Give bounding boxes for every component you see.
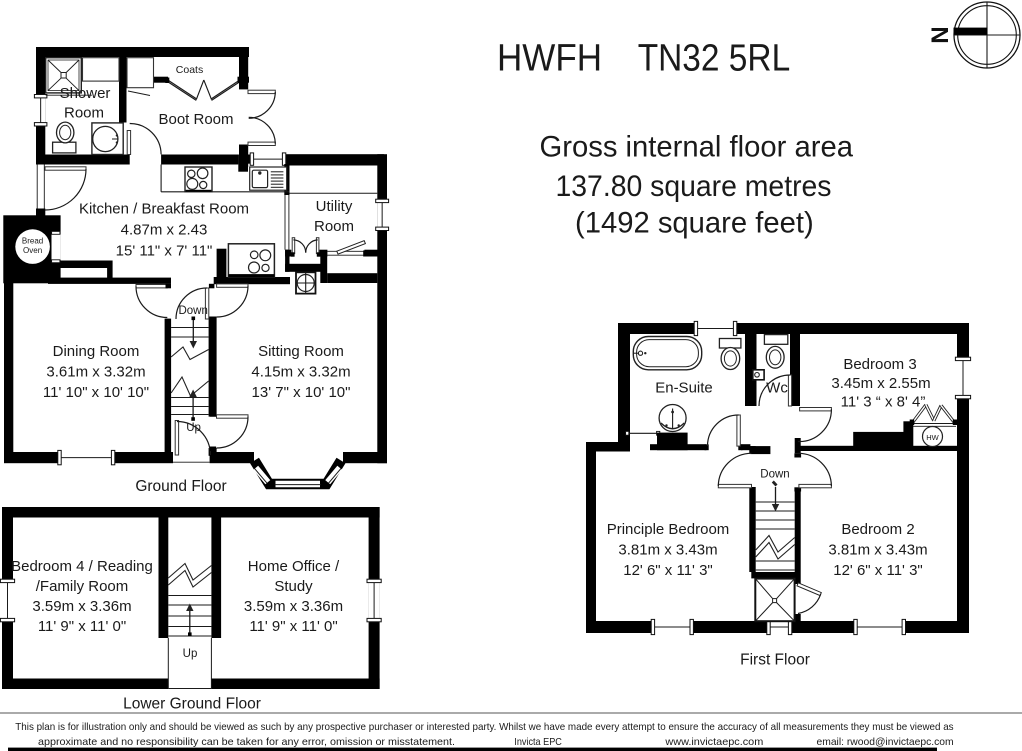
svg-text:(1492 square feet): (1492 square feet) — [575, 207, 814, 240]
svg-text:Bread: Bread — [22, 237, 43, 246]
svg-text:En-Suite: En-Suite — [655, 380, 713, 397]
svg-text:Boot Room: Boot Room — [158, 111, 233, 128]
svg-text:Lower Ground Floor: Lower Ground Floor — [123, 696, 261, 713]
svg-text:3.59m x 3.36m: 3.59m x 3.36m — [32, 598, 131, 615]
svg-text:Bedroom 3: Bedroom 3 — [843, 356, 916, 373]
svg-text:N: N — [926, 26, 953, 43]
svg-text:Room: Room — [64, 105, 104, 122]
svg-text:First Floor: First Floor — [740, 652, 810, 669]
svg-text:Bedroom 2: Bedroom 2 — [841, 521, 914, 538]
svg-text:13' 7" x 10' 10": 13' 7" x 10' 10" — [252, 384, 351, 401]
svg-text:Kitchen / Breakfast Room: Kitchen / Breakfast Room — [79, 201, 249, 218]
svg-text:approximate and no responsibil: approximate and no responsibility can be… — [38, 737, 455, 748]
svg-text:11' 9" x 11' 0": 11' 9" x 11' 0" — [249, 618, 337, 635]
svg-text:Up: Up — [186, 422, 201, 434]
svg-text:3.61m x 3.32m: 3.61m x 3.32m — [46, 364, 145, 381]
svg-text:Coats: Coats — [176, 64, 203, 76]
svg-text:Sitting Room: Sitting Room — [258, 343, 344, 360]
svg-text:Up: Up — [183, 648, 198, 660]
svg-text:Down: Down — [760, 469, 789, 481]
svg-text:Dining Room: Dining Room — [53, 343, 140, 360]
svg-text:3.81m x 3.43m: 3.81m x 3.43m — [618, 542, 717, 559]
svg-text:Invicta EPC: Invicta EPC — [514, 737, 562, 748]
svg-text:Bedroom 4 / Reading: Bedroom 4 / Reading — [11, 558, 153, 575]
svg-text:Oven: Oven — [23, 246, 42, 255]
svg-text:11' 10" x 10' 10": 11' 10" x 10' 10" — [43, 384, 149, 401]
svg-text:Principle Bedroom: Principle Bedroom — [607, 521, 730, 538]
svg-text:Ground Floor: Ground Floor — [135, 478, 226, 495]
svg-text:Shower: Shower — [60, 85, 111, 102]
svg-text:HW: HW — [926, 433, 939, 442]
svg-text:Study: Study — [274, 578, 313, 595]
svg-text:12' 6" x 11' 3": 12' 6" x 11' 3" — [833, 562, 923, 579]
svg-text:Wc: Wc — [766, 380, 788, 397]
svg-text:Home Office /: Home Office / — [248, 558, 340, 575]
svg-text:email: rwood@invictaepc.com: email: rwood@invictaepc.com — [817, 737, 954, 748]
svg-text:HWFH: HWFH — [497, 38, 602, 80]
svg-text:TN32 5RL: TN32 5RL — [638, 38, 791, 80]
svg-text:This plan is for illustration: This plan is for illustration only and s… — [15, 722, 953, 733]
svg-text:12' 6" x 11' 3": 12' 6" x 11' 3" — [623, 562, 713, 579]
svg-text:4.15m x 3.32m: 4.15m x 3.32m — [251, 364, 350, 381]
svg-text:137.80 square metres: 137.80 square metres — [556, 170, 832, 203]
svg-text:Gross internal floor area: Gross internal floor area — [540, 131, 854, 164]
svg-text:11' 3 “ x 8' 4”: 11' 3 “ x 8' 4” — [841, 394, 926, 411]
svg-text:15' 11" x 7' 11": 15' 11" x 7' 11" — [116, 243, 213, 260]
svg-text:Down: Down — [178, 305, 207, 317]
svg-text:3.59m x 3.36m: 3.59m x 3.36m — [244, 598, 343, 615]
svg-text:11' 9" x 11' 0": 11' 9" x 11' 0" — [38, 618, 126, 635]
svg-text:4.87m x 2.43: 4.87m x 2.43 — [121, 222, 208, 239]
svg-text:Utility: Utility — [316, 198, 353, 215]
svg-text:Room: Room — [314, 218, 354, 235]
svg-text:www.invictaepc.com: www.invictaepc.com — [664, 737, 763, 748]
svg-text:3.81m x 3.43m: 3.81m x 3.43m — [828, 542, 927, 559]
svg-text:/Family Room: /Family Room — [36, 578, 129, 595]
svg-text:3.45m x 2.55m: 3.45m x 2.55m — [831, 375, 930, 392]
